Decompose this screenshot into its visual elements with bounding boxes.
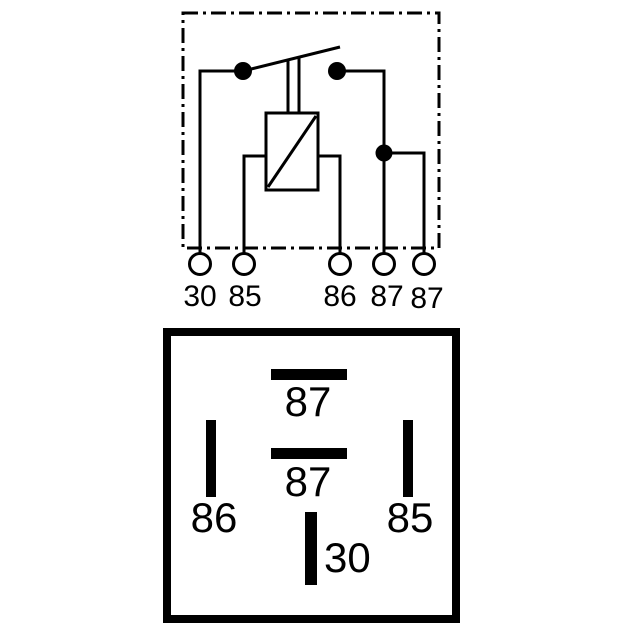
pin-label-87-center: 87	[285, 458, 332, 505]
terminal-label-87b: 87	[410, 282, 443, 315]
relay-diagram-svg: 30 85 86 87 87 87 87 86 85 30	[0, 0, 640, 640]
terminal-label-30: 30	[183, 280, 216, 313]
wire-terminal-87b	[384, 153, 424, 253]
wire-terminal-30	[200, 71, 243, 253]
terminal-circle-87b	[414, 254, 435, 275]
relay-pin-layout: 87 87 86 85 30	[167, 332, 456, 619]
junction-dot-87-branch	[376, 145, 393, 162]
pin-bar-86	[206, 420, 216, 497]
terminal-circle-86	[330, 254, 351, 275]
terminal-circle-85	[234, 254, 255, 275]
terminal-label-85: 85	[228, 280, 261, 313]
pin-label-85: 85	[387, 494, 434, 541]
junction-dot-switch-common	[234, 62, 252, 80]
pin-label-30: 30	[324, 534, 371, 581]
pin-label-87-top: 87	[285, 378, 332, 425]
switch-arm	[243, 47, 340, 71]
terminal-circle-87	[374, 254, 395, 275]
terminal-label-86: 86	[323, 280, 356, 313]
wire-terminal-87	[337, 71, 384, 253]
wire-coil-to-86	[318, 156, 340, 253]
junction-dot-switch-contact	[328, 62, 346, 80]
relay-schematic: 30 85 86 87 87	[183, 13, 444, 315]
terminal-label-87: 87	[370, 280, 403, 313]
pin-bar-30	[305, 512, 317, 585]
terminal-circle-30	[190, 254, 211, 275]
pin-bar-85	[403, 420, 413, 497]
pin-label-86: 86	[191, 494, 238, 541]
wire-coil-to-85	[244, 156, 266, 253]
relay-diagram-page: 30 85 86 87 87 87 87 86 85 30	[0, 0, 640, 640]
